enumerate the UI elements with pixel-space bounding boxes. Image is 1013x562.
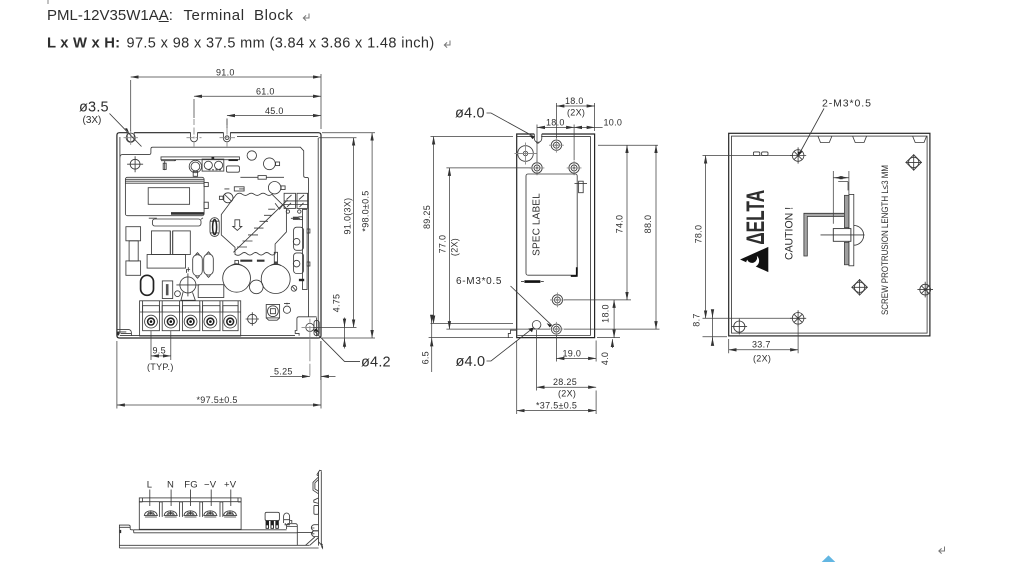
svg-text:(2X): (2X) <box>449 238 459 256</box>
svg-text:L x W x H:: L x W x H: <box>47 36 120 52</box>
svg-text:(3X): (3X) <box>83 115 102 126</box>
svg-text:(2X): (2X) <box>567 108 585 118</box>
svg-text:ΔELTA: ΔELTA <box>742 190 770 245</box>
svg-text:+V: +V <box>224 480 237 491</box>
svg-text:77.0: 77.0 <box>437 235 447 254</box>
svg-text:4.0: 4.0 <box>600 352 610 365</box>
svg-text:18.0: 18.0 <box>600 304 610 323</box>
svg-text:CAUTION !: CAUTION ! <box>783 207 795 260</box>
svg-text:−V: −V <box>204 480 217 491</box>
svg-text:ø4.0: ø4.0 <box>456 354 486 370</box>
svg-text:Terminal Block: Terminal Block <box>184 7 294 24</box>
svg-text:89.25: 89.25 <box>422 205 432 229</box>
svg-text:19.0: 19.0 <box>563 348 582 358</box>
svg-text:91.0(3X): 91.0(3X) <box>343 198 353 235</box>
svg-text:88.0: 88.0 <box>643 215 653 234</box>
svg-text:(2X): (2X) <box>558 389 576 399</box>
svg-text:FG: FG <box>184 480 198 491</box>
svg-text:(2X): (2X) <box>753 354 771 364</box>
svg-text:L: L <box>147 480 152 491</box>
svg-text:61.0: 61.0 <box>256 87 275 97</box>
svg-text:6.5: 6.5 <box>421 351 431 364</box>
svg-text:ø3.5: ø3.5 <box>79 100 109 116</box>
svg-text:2-M3*0.5: 2-M3*0.5 <box>822 98 872 110</box>
svg-text:SPEC LABEL: SPEC LABEL <box>531 193 542 256</box>
svg-text:8.7: 8.7 <box>692 313 702 326</box>
svg-text:18.0: 18.0 <box>565 96 584 106</box>
svg-text:4.75: 4.75 <box>331 294 341 313</box>
svg-text:6-M3*0.5: 6-M3*0.5 <box>456 276 502 287</box>
svg-text:*98.0±0.5: *98.0±0.5 <box>360 190 370 231</box>
svg-text:5.25: 5.25 <box>274 366 293 376</box>
svg-text:ø4.0: ø4.0 <box>455 106 485 122</box>
svg-text:*37.5±0.5: *37.5±0.5 <box>536 400 577 410</box>
svg-text:28.25: 28.25 <box>553 377 577 387</box>
svg-text:9.5: 9.5 <box>153 345 166 355</box>
svg-text:18.0: 18.0 <box>546 118 565 128</box>
svg-text:91.0: 91.0 <box>216 68 235 78</box>
svg-text:(TYP.): (TYP.) <box>147 362 174 372</box>
svg-text:ø4.2: ø4.2 <box>361 355 391 371</box>
svg-text:45.0: 45.0 <box>265 106 284 116</box>
svg-text:78.0: 78.0 <box>694 225 704 244</box>
svg-text:74.0: 74.0 <box>615 215 625 234</box>
svg-text:33.7: 33.7 <box>752 340 771 350</box>
svg-text:SCREW PROTRUSION LENGTH L≤3 M: SCREW PROTRUSION LENGTH L≤3 MM <box>880 165 890 315</box>
svg-text:97.5 x 98 x 37.5 mm (3.84 x 3.: 97.5 x 98 x 37.5 mm (3.84 x 3.86 x 1.48 … <box>127 36 435 52</box>
svg-text:10.0: 10.0 <box>604 118 623 128</box>
svg-text:*97.5±0.5: *97.5±0.5 <box>197 395 238 405</box>
svg-text:PML-12V35W1AA:: PML-12V35W1AA: <box>47 7 173 24</box>
svg-text:N: N <box>167 480 174 491</box>
